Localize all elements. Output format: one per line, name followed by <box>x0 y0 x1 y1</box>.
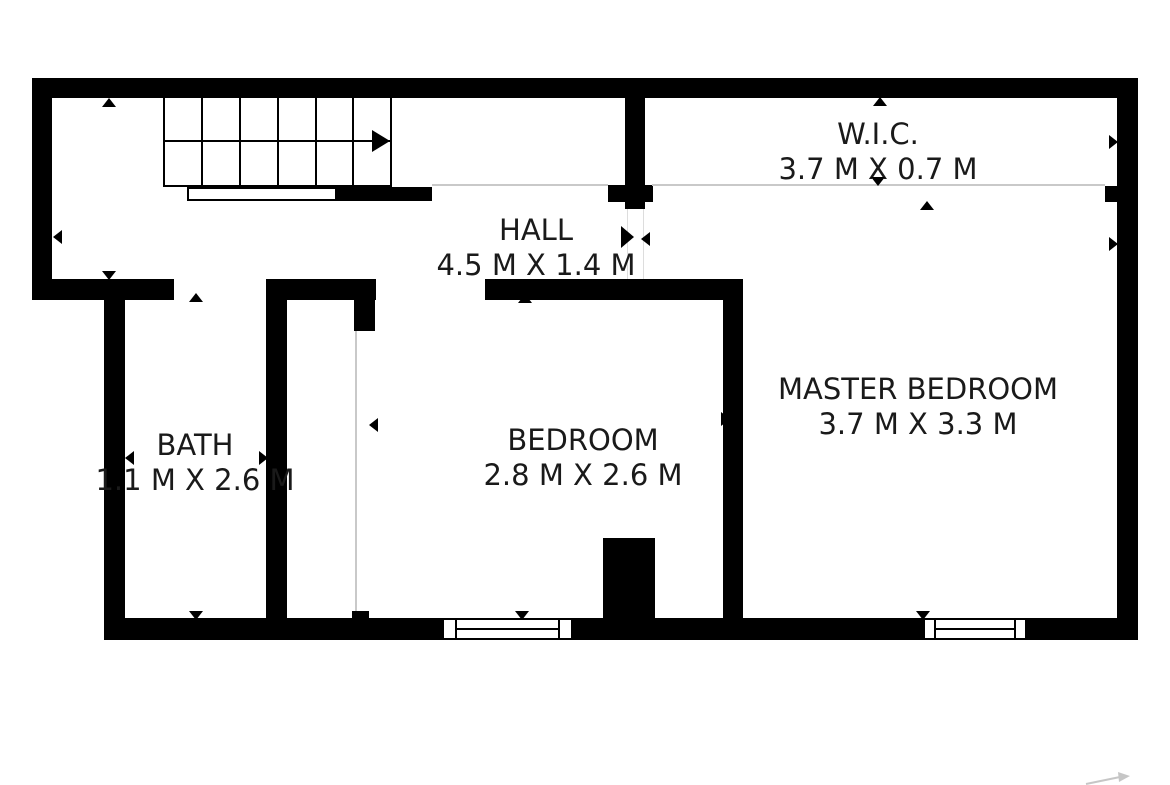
room-label-bedroom: BEDROOM 2.8 M X 2.6 M <box>483 423 682 493</box>
stair-tread-line <box>352 98 354 187</box>
room-name: MASTER BEDROOM <box>778 372 1058 407</box>
wall-right <box>1117 78 1138 640</box>
room-name: BEDROOM <box>483 423 682 458</box>
wall-hall-wic <box>625 97 645 187</box>
wall-left <box>32 78 52 300</box>
stair-tread-line <box>277 98 279 187</box>
wall-hall-wic-tab <box>625 200 645 209</box>
window-pane-line <box>936 628 1014 630</box>
stair-tread-line <box>315 98 317 187</box>
direction-arrow-down <box>102 271 116 280</box>
window-divider <box>558 620 560 638</box>
wall-top <box>32 78 1138 98</box>
stair-tread-line <box>163 98 165 187</box>
direction-arrow-down <box>189 611 203 620</box>
wall-left-step <box>32 279 174 300</box>
wall-line-foot <box>352 611 369 619</box>
closet-line <box>355 331 357 611</box>
room-label-master-bedroom: MASTER BEDROOM 3.7 M X 3.3 M <box>778 372 1058 442</box>
direction-arrow-left <box>369 418 378 432</box>
stair-tread-line <box>390 98 392 187</box>
direction-arrow-up <box>920 201 934 210</box>
direction-arrow-up <box>873 97 887 106</box>
direction-arrow-right <box>1109 237 1118 251</box>
direction-arrow-left <box>641 232 650 246</box>
direction-arrow-right <box>259 451 268 465</box>
stair-landing <box>187 187 337 201</box>
wall-wic-right-stub <box>1105 186 1117 202</box>
room-name: W.I.C. <box>778 117 977 152</box>
stair-center-line <box>163 140 390 142</box>
room-dimensions: 2.8 M X 2.6 M <box>483 458 682 493</box>
chimney-block <box>603 538 655 618</box>
direction-arrow-right <box>621 226 634 248</box>
direction-arrow-up <box>102 98 116 107</box>
direction-arrow-left <box>53 230 62 244</box>
room-label-hall: HALL 4.5 M X 1.4 M <box>436 213 635 283</box>
floor-plan: HALL 4.5 M X 1.4 M W.I.C. 3.7 M X 0.7 M … <box>0 0 1170 785</box>
wall-landing-bar <box>337 187 432 201</box>
direction-arrow-left <box>125 451 134 465</box>
direction-arrow-down <box>916 611 930 620</box>
bedroom-window <box>442 618 573 640</box>
direction-arrow-up <box>518 294 532 303</box>
wall-closet-stub <box>354 300 375 331</box>
stair-tread-line <box>201 98 203 187</box>
window-divider <box>1014 620 1016 638</box>
window-pane-line <box>457 628 558 630</box>
hall-opening-line <box>432 184 608 186</box>
master-bedroom-window <box>923 618 1027 640</box>
room-dimensions: 3.7 M X 3.3 M <box>778 407 1058 442</box>
direction-arrow-right <box>721 412 730 426</box>
room-dimensions: 1.1 M X 2.6 M <box>95 463 294 498</box>
wall-bath-top <box>266 279 376 300</box>
stair-bottom-line <box>163 185 390 187</box>
room-name: HALL <box>436 213 635 248</box>
wall-master-left <box>723 300 743 618</box>
direction-arrow-down <box>515 611 529 620</box>
stair-tread-line <box>239 98 241 187</box>
compass-north-arrow <box>1082 768 1142 785</box>
room-dimensions: 4.5 M X 1.4 M <box>436 248 635 283</box>
direction-arrow-right <box>1109 135 1118 149</box>
direction-arrow-up <box>189 293 203 302</box>
direction-arrow-down <box>871 177 885 186</box>
